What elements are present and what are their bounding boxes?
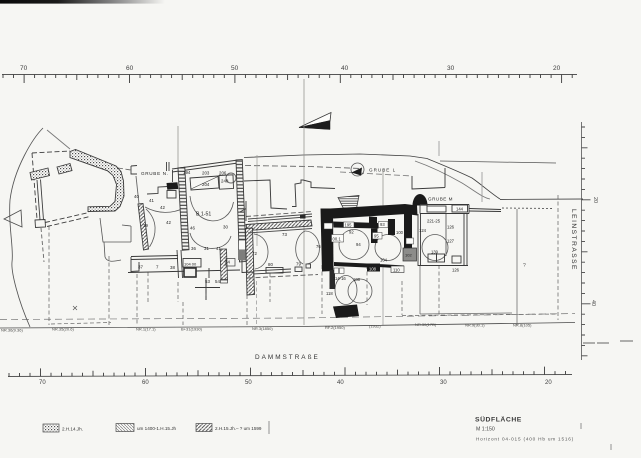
svg-text:LEINSTRASSE: LEINSTRASSE [570, 209, 577, 271]
svg-text:76: 76 [316, 244, 321, 249]
svg-text:70: 70 [39, 380, 46, 386]
svg-text:Horizont 04-015 (400 Hb um 1: Horizont 04-015 (400 Hb um 1516) [476, 437, 574, 442]
svg-text:20: 20 [592, 197, 598, 203]
svg-text:114-16: 114-16 [333, 276, 346, 281]
svg-text:GRUBE L: GRUBE L [369, 168, 396, 173]
svg-text:206: 206 [219, 171, 227, 176]
svg-text:127: 127 [447, 239, 455, 244]
svg-text:221-25: 221-25 [427, 219, 441, 224]
svg-text:240: 240 [221, 179, 229, 184]
svg-text:(1932): (1932) [369, 324, 381, 329]
svg-text:20: 20 [553, 65, 561, 72]
svg-text:NR.3(1850): NR.3(1850) [252, 326, 273, 331]
svg-text:M 1:150: M 1:150 [476, 427, 495, 433]
svg-text:00.1: 00.1 [333, 237, 342, 242]
svg-text:SÜDFLÄCHE: SÜDFLÄCHE [475, 415, 522, 424]
svg-text:?: ? [523, 263, 526, 269]
svg-text:54: 54 [215, 279, 220, 284]
svg-text:GRUBE M: GRUBE M [428, 197, 453, 202]
svg-text:41: 41 [216, 246, 221, 251]
svg-text:144: 144 [456, 207, 464, 212]
svg-text:70: 70 [20, 65, 28, 72]
svg-text:204: 204 [202, 182, 210, 187]
svg-text:NR.1(17.1): NR.1(17.1) [136, 327, 156, 332]
svg-text:42: 42 [160, 205, 165, 210]
svg-text:93: 93 [380, 222, 385, 227]
svg-text:72: 72 [252, 251, 257, 256]
svg-text:B+31(1930): B+31(1930) [181, 327, 203, 332]
svg-text:30: 30 [447, 65, 455, 72]
svg-text:NR.36(9.36): NR.36(9.36) [1, 328, 23, 333]
svg-text:39: 39 [143, 223, 148, 228]
svg-text:118: 118 [326, 291, 333, 296]
svg-text:126: 126 [452, 268, 460, 273]
svg-text:NR.30(17B): NR.30(17B) [415, 322, 437, 327]
svg-text:108: 108 [353, 277, 361, 282]
svg-text:50: 50 [231, 65, 239, 72]
svg-text:2.H.15.Jh.– ? um 1599: 2.H.15.Jh.– ? um 1599 [215, 426, 262, 431]
svg-text:126: 126 [447, 225, 455, 230]
svg-text:139: 139 [431, 250, 439, 255]
svg-text:30: 30 [223, 225, 228, 230]
svg-text:94: 94 [356, 242, 361, 247]
svg-text:79: 79 [296, 262, 301, 267]
svg-text:92: 92 [349, 230, 354, 235]
svg-text:100: 100 [396, 230, 404, 235]
svg-text:95: 95 [374, 234, 379, 239]
svg-text:40: 40 [134, 194, 139, 199]
svg-text:80: 80 [268, 262, 273, 267]
svg-text:um 1400-1.H.15.Jh: um 1400-1.H.15.Jh [137, 426, 177, 431]
svg-text:GRUBE N.: GRUBE N. [141, 171, 169, 176]
svg-text:30: 30 [440, 380, 447, 386]
svg-text:RF.2(1950): RF.2(1950) [325, 325, 345, 330]
svg-text:46: 46 [190, 226, 195, 231]
svg-text:40: 40 [590, 300, 596, 306]
svg-text:20: 20 [545, 380, 552, 386]
svg-text:34: 34 [225, 260, 230, 265]
svg-text:102: 102 [405, 253, 412, 258]
svg-text:DAMMSTRAßE: DAMMSTRAßE [255, 354, 320, 361]
svg-text:41: 41 [149, 198, 154, 203]
svg-text:NR.9(30.1): NR.9(30.1) [465, 323, 485, 328]
svg-text:NR.8(105): NR.8(105) [513, 323, 532, 328]
svg-text:2.H.14.Jh.: 2.H.14.Jh. [62, 427, 83, 432]
svg-text:60: 60 [126, 65, 134, 72]
svg-text:38: 38 [170, 265, 175, 270]
svg-text:37: 37 [138, 265, 143, 270]
svg-text:108: 108 [369, 267, 377, 272]
svg-text:195: 195 [345, 222, 353, 227]
svg-text:104 00: 104 00 [184, 262, 197, 267]
svg-text:60: 60 [142, 380, 149, 386]
svg-text:104: 104 [380, 258, 388, 263]
svg-text:124: 124 [419, 228, 427, 233]
svg-text:50: 50 [245, 380, 252, 386]
svg-text:110: 110 [393, 268, 400, 273]
svg-text:40: 40 [337, 380, 344, 386]
svg-text:31: 31 [204, 246, 209, 251]
svg-text:53: 53 [205, 279, 210, 284]
svg-text:42: 42 [166, 220, 171, 225]
svg-text:40: 40 [341, 65, 349, 72]
svg-text:194: 194 [183, 170, 191, 175]
svg-text:B 1-51: B 1-51 [196, 212, 211, 218]
svg-text:73: 73 [282, 232, 287, 237]
svg-text:203: 203 [202, 171, 210, 176]
svg-text:NR.35(20.6): NR.35(20.6) [52, 327, 74, 332]
svg-text:36: 36 [191, 246, 196, 251]
